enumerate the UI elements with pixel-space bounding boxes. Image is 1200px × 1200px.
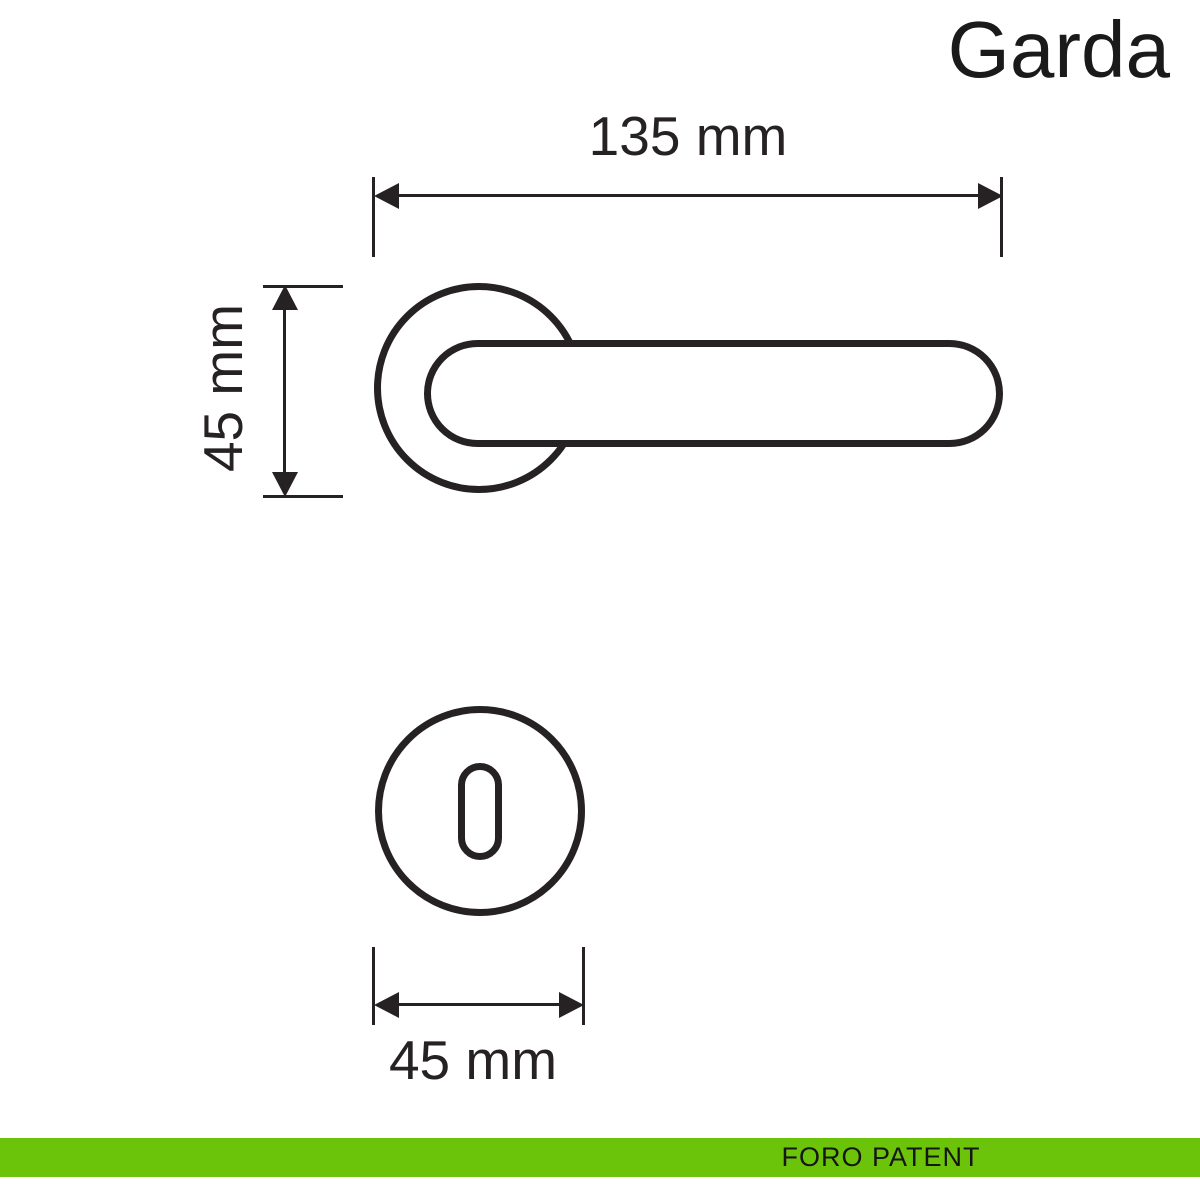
- footer-brand-label: FORO PATENT: [782, 1138, 981, 1177]
- arrowhead-left-icon: [374, 992, 399, 1018]
- dimension-line-shaft: [378, 194, 999, 197]
- dimension-line-escutcheon-diameter: [374, 992, 584, 1018]
- product-title: Garda: [948, 6, 1170, 94]
- dimension-line-rosette-diameter: [272, 285, 298, 497]
- footer-bar: FORO PATENT: [0, 1138, 1200, 1177]
- lever-handle-outline: [424, 340, 1003, 447]
- arrowhead-up-icon: [272, 285, 298, 310]
- arrowhead-right-icon: [978, 183, 1003, 209]
- dimension-label-rosette-diameter: 45 mm: [193, 304, 254, 472]
- diagram-canvas: Garda 135 mm 45 mm 45 mm FORO PATENT: [0, 0, 1200, 1200]
- keyhole-slot-outline: [458, 763, 502, 860]
- arrowhead-left-icon: [374, 183, 399, 209]
- arrowhead-down-icon: [272, 472, 298, 497]
- dimension-label-escutcheon-diameter: 45 mm: [389, 1030, 557, 1091]
- dimension-line-handle-length: [374, 183, 1003, 209]
- arrowhead-right-icon: [559, 992, 584, 1018]
- dimension-line-shaft: [283, 289, 286, 493]
- dimension-label-handle-length: 135 mm: [589, 106, 788, 167]
- dimension-line-shaft: [378, 1003, 580, 1006]
